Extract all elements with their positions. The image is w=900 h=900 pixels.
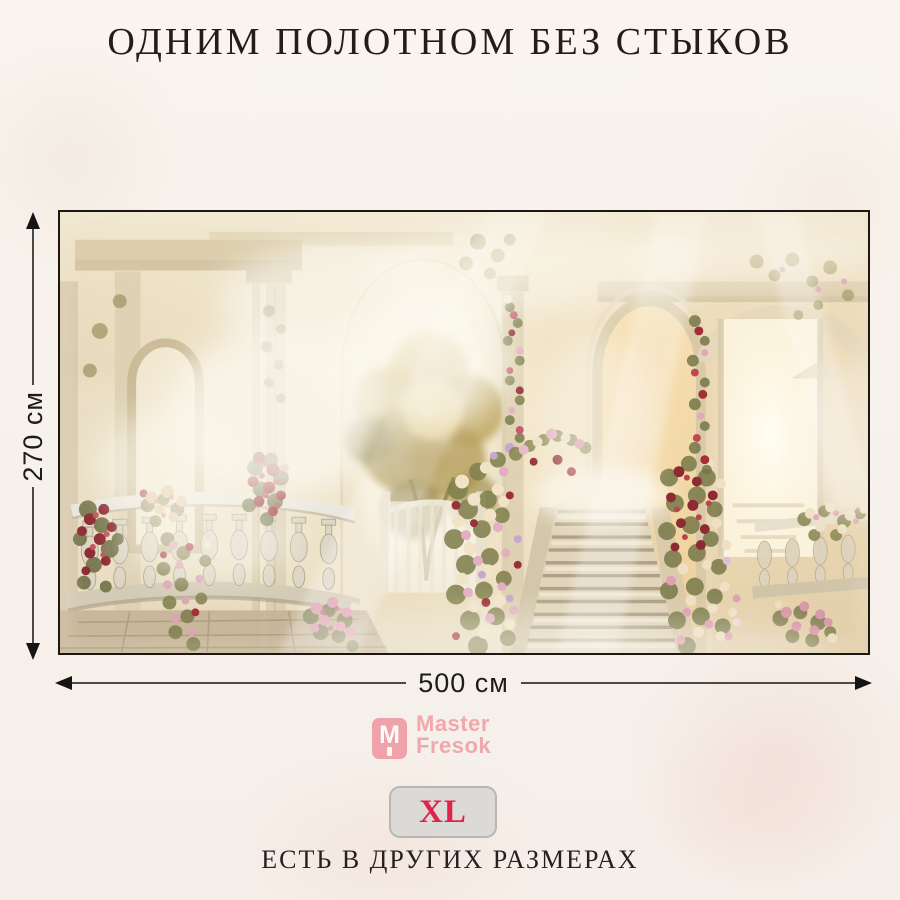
height-dimension: 270 см [19,212,47,660]
roller-handle-icon [387,747,392,756]
arrow-down-icon [26,643,40,660]
logo-letter: M [379,723,400,748]
arrow-right-icon [855,676,872,690]
width-dimension-label: 500 см [418,668,509,699]
brand-logo-icon: M [372,718,407,759]
brand-name-line2: Fresok [416,735,491,757]
width-dimension: 500 см [55,669,872,697]
footer-note: ЕСТЬ В ДРУГИХ РАЗМЕРАХ [0,845,900,875]
size-badge-label: XL [419,794,467,831]
arrow-up-icon [26,212,40,229]
dimension-line [521,682,855,684]
mural-artwork [60,212,868,653]
mural-image [58,210,870,655]
page-title: ОДНИМ ПОЛОТНОМ БЕЗ СТЫКОВ [0,20,900,64]
dimension-line [32,487,34,643]
product-banner: ОДНИМ ПОЛОТНОМ БЕЗ СТЫКОВ 270 см [0,0,900,900]
dimension-line [32,229,34,385]
brand-logo: M Master Fresok [372,713,491,759]
brand-logo-text: Master Fresok [416,713,491,757]
brand-name-line1: Master [416,713,491,735]
height-dimension-label: 270 см [18,391,49,482]
arrow-left-icon [55,676,72,690]
dimension-line [72,682,406,684]
size-badge: XL [389,786,497,838]
